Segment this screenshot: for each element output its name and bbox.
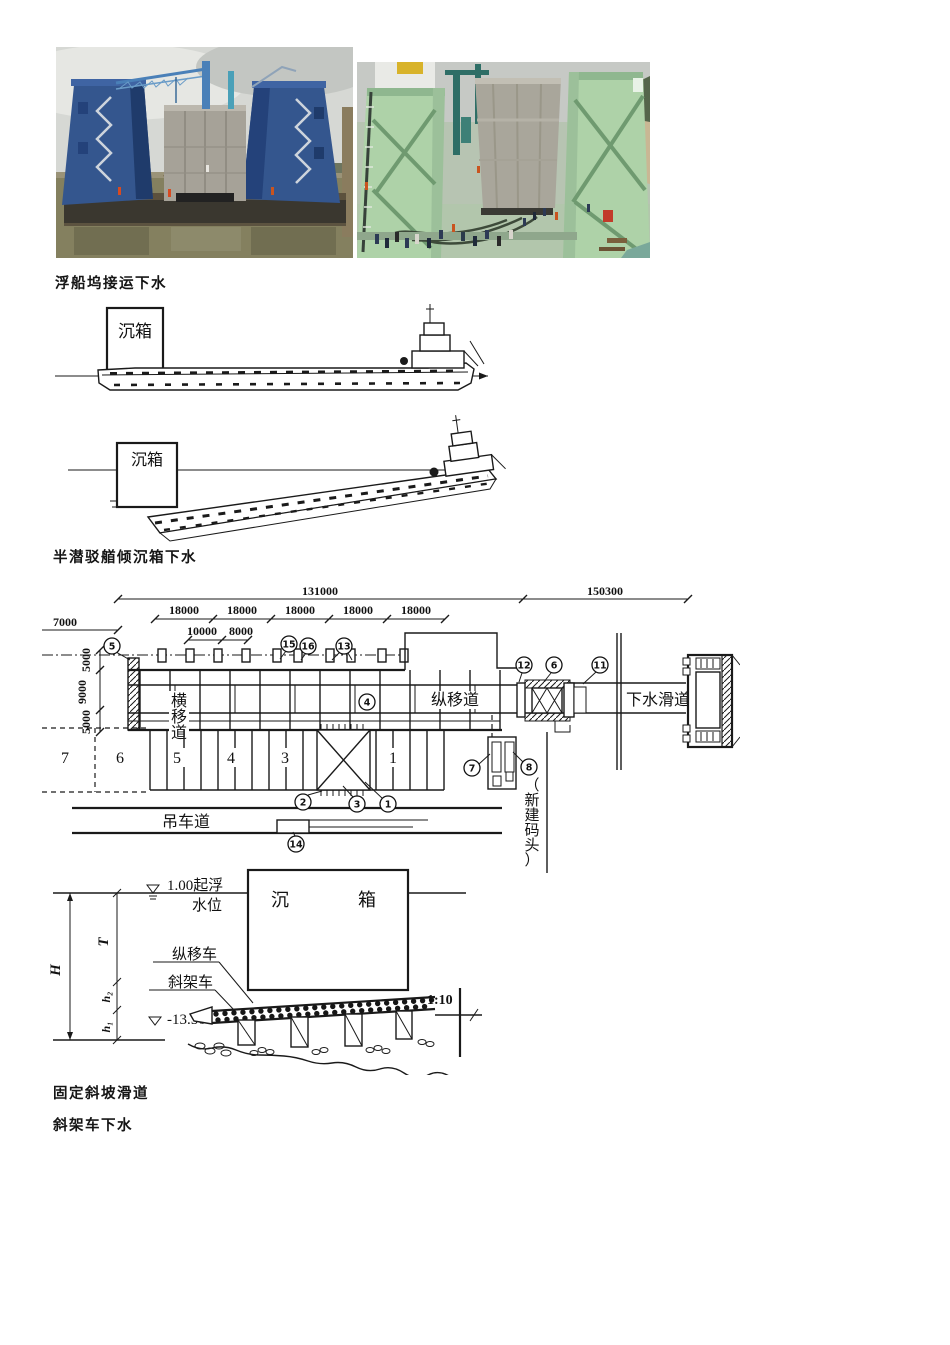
slipway-end-block xyxy=(683,655,740,747)
caption-tilt-frame: 斜架车下水 xyxy=(53,1114,133,1135)
dim-8000: 8000 xyxy=(229,624,253,638)
winch-house xyxy=(488,715,516,789)
svg-text:18000: 18000 xyxy=(343,603,373,617)
figure-semi-submersible-barge: 沉箱 沉箱 xyxy=(40,295,510,545)
dim-131000: 131000 xyxy=(302,584,338,598)
dim-T-h: T h₂ h₁ xyxy=(96,889,121,1044)
dim-10000: 10000 xyxy=(187,624,217,638)
water-level-text-top: 1.00起浮 xyxy=(167,877,223,894)
barge-level: 沉箱 xyxy=(55,304,488,390)
svg-text:18000: 18000 xyxy=(285,603,315,617)
timber xyxy=(607,238,627,243)
caisson-char-2: 箱 xyxy=(358,890,376,910)
slope-ratio: 1:10 xyxy=(427,993,453,1008)
crane-track: 吊车道 xyxy=(72,808,502,833)
reflection xyxy=(74,227,149,255)
svg-text:5: 5 xyxy=(173,750,181,767)
svg-text:4: 4 xyxy=(364,698,371,709)
caption-floating-dock: 浮船坞接运下水 xyxy=(55,272,167,293)
water-level-text-bottom: 水位 xyxy=(192,897,222,914)
svg-text:18000: 18000 xyxy=(227,603,257,617)
figure-slipway-plan: 131000 150300 18000 18000 18000 18000 18… xyxy=(40,580,740,880)
tug-superstructure xyxy=(400,304,484,368)
barge-trimmed: 沉箱 xyxy=(68,409,506,541)
caisson xyxy=(164,105,246,202)
tug-superstructure xyxy=(438,409,506,477)
svg-text:2: 2 xyxy=(300,798,307,809)
label-longitudinal-car: 纵移车 xyxy=(172,946,217,963)
photo-caisson-transfer xyxy=(357,62,650,258)
svg-text:1: 1 xyxy=(389,750,397,767)
svg-text:11: 11 xyxy=(593,661,606,672)
red-box xyxy=(603,210,613,222)
svg-text:8: 8 xyxy=(526,763,533,774)
crossed-berth xyxy=(317,724,370,796)
svg-text:3: 3 xyxy=(354,800,361,811)
label-crane-track: 吊车道 xyxy=(162,813,210,831)
svg-text:7: 7 xyxy=(61,750,69,767)
quay-edge xyxy=(617,633,621,770)
label-new-wharf: （新建码头） xyxy=(524,777,539,869)
svg-text:14: 14 xyxy=(289,840,303,851)
svg-text:6: 6 xyxy=(116,750,124,767)
svg-text:13: 13 xyxy=(337,642,350,653)
figure-slipway-section: 沉 箱 1.00起浮 水位 H T h₂ h₁ 纵移车 xyxy=(40,860,490,1075)
caisson-label: 沉箱 xyxy=(131,451,163,469)
caption-fixed-slope: 固定斜坡滑道 xyxy=(53,1082,149,1103)
label-launch-slipway: 下水滑道 xyxy=(626,691,690,709)
track-band xyxy=(128,633,686,730)
caisson-char-1: 沉 xyxy=(271,890,289,910)
dim-H: H xyxy=(48,893,165,1040)
label-tilt-frame-car: 斜架车 xyxy=(168,974,213,991)
caption-semi-submersible: 半潜驳艏倾沉箱下水 xyxy=(53,546,197,567)
svg-text:16: 16 xyxy=(301,642,315,653)
label-longitudinal-track: 纵移道 xyxy=(431,691,479,709)
rock-revetment xyxy=(195,1043,231,1056)
photo-floating-dock xyxy=(56,47,353,258)
svg-text:h₁: h₁ xyxy=(99,1022,113,1033)
svg-text:H: H xyxy=(48,963,64,977)
svg-text:T: T xyxy=(96,937,112,947)
svg-text:7: 7 xyxy=(469,764,476,775)
end-wall xyxy=(128,658,139,730)
svg-text:9000: 9000 xyxy=(75,680,89,704)
reflection xyxy=(251,227,336,255)
caisson-label: 沉箱 xyxy=(118,322,152,341)
svg-text:18000: 18000 xyxy=(401,603,431,617)
svg-text:5000: 5000 xyxy=(79,710,93,734)
svg-text:5: 5 xyxy=(109,642,116,653)
svg-text:4: 4 xyxy=(227,750,235,767)
svg-text:12: 12 xyxy=(517,661,530,672)
svg-text:5000: 5000 xyxy=(79,648,93,672)
svg-text:6: 6 xyxy=(551,661,558,672)
right-wing-wall xyxy=(242,81,340,203)
dim-7000: 7000 xyxy=(53,615,77,629)
waterline-arrow xyxy=(479,373,488,380)
transfer-connector xyxy=(517,680,586,732)
svg-text:3: 3 xyxy=(281,750,289,767)
svg-text:15: 15 xyxy=(282,640,295,651)
dim-150300: 150300 xyxy=(587,584,623,598)
car-labels: 纵移车 斜架车 xyxy=(149,946,253,1011)
svg-text:h₂: h₂ xyxy=(99,992,113,1003)
svg-text:18000: 18000 xyxy=(169,603,199,617)
right-tower xyxy=(563,72,650,258)
left-wing-wall xyxy=(62,79,153,205)
caisson xyxy=(475,78,561,215)
svg-text:1: 1 xyxy=(385,800,392,811)
caisson-outline xyxy=(248,870,408,990)
dashed-boundaries xyxy=(42,728,150,792)
skid-beams xyxy=(481,208,553,215)
document-page: 浮船坞接运下水 沉箱 xyxy=(0,0,950,1345)
